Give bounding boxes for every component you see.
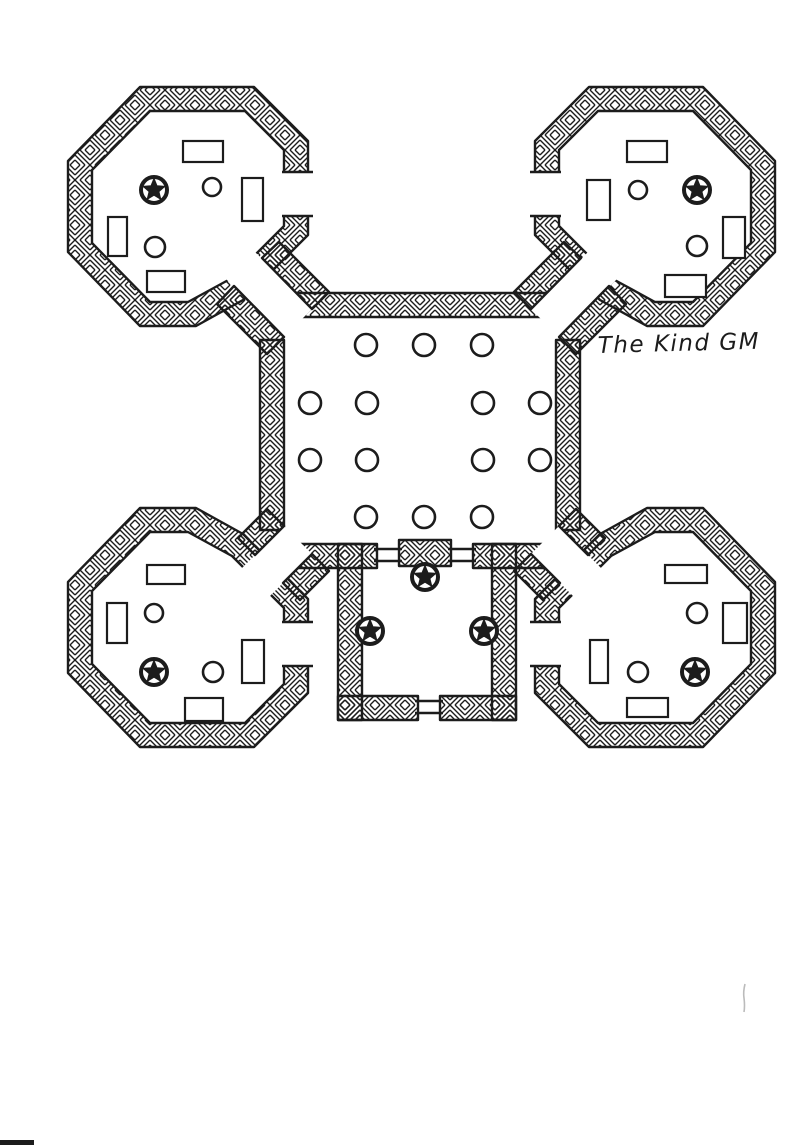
hall-top-wall bbox=[294, 293, 550, 317]
furniture-rect bbox=[587, 180, 610, 220]
furniture-rect bbox=[723, 603, 747, 643]
room-pillar bbox=[203, 662, 223, 682]
furniture-rect bbox=[590, 640, 608, 683]
hall-pillars bbox=[299, 334, 551, 528]
hall-pillar bbox=[529, 449, 551, 471]
star-pillars bbox=[141, 177, 710, 685]
scan-edge-mark bbox=[0, 1140, 34, 1145]
room-pillar bbox=[628, 662, 648, 682]
hall-pillar bbox=[529, 392, 551, 414]
hall-pillar bbox=[472, 392, 494, 414]
artist-signature: The Kind GM bbox=[597, 329, 760, 359]
hall-pillar bbox=[413, 334, 435, 356]
scanned-map-page: The Kind GM bbox=[0, 0, 810, 1145]
hall-pillar bbox=[413, 506, 435, 528]
exit-topleft-floor bbox=[272, 172, 313, 216]
exit-edges bbox=[282, 172, 561, 666]
hall-pillar bbox=[355, 334, 377, 356]
furniture-rect bbox=[242, 640, 264, 683]
squareroom-bottom-wall-right bbox=[440, 696, 516, 720]
furniture-rect bbox=[185, 698, 223, 721]
room-pillar bbox=[145, 237, 165, 257]
hall-left-wall bbox=[260, 340, 284, 530]
hall-pillar bbox=[299, 392, 321, 414]
furniture-rect bbox=[147, 565, 185, 584]
hall-right-wall bbox=[556, 340, 580, 530]
furniture-rect bbox=[108, 217, 127, 256]
furniture-rect bbox=[723, 217, 745, 258]
furniture bbox=[107, 141, 747, 721]
pencil-smudge bbox=[744, 984, 745, 1012]
furniture-rect bbox=[665, 565, 707, 583]
exit-bottomright-floor bbox=[530, 622, 571, 666]
room-pillar bbox=[629, 181, 647, 199]
dungeon-map: The Kind GM bbox=[0, 0, 810, 1145]
furniture-rect bbox=[627, 698, 668, 717]
exit-bottomleft-floor bbox=[272, 622, 313, 666]
furniture-rect bbox=[627, 141, 667, 162]
room-pillars bbox=[145, 178, 707, 682]
hall-pillar bbox=[299, 449, 321, 471]
furniture-rect bbox=[107, 603, 127, 643]
hall-pillar bbox=[356, 449, 378, 471]
exit-topright-floor bbox=[530, 172, 571, 216]
hall-pillar bbox=[471, 506, 493, 528]
furniture-rect bbox=[147, 271, 185, 292]
hall-pillar bbox=[472, 449, 494, 471]
room-pillar bbox=[687, 236, 707, 256]
furniture-rect bbox=[665, 275, 706, 297]
furniture-rect bbox=[183, 141, 223, 162]
paper-artifacts bbox=[0, 984, 745, 1145]
hall-pillar bbox=[471, 334, 493, 356]
walls-layer bbox=[68, 87, 775, 747]
furniture-rect bbox=[242, 178, 263, 221]
room-pillar bbox=[203, 178, 221, 196]
hall-pillar bbox=[355, 506, 377, 528]
room-pillar bbox=[145, 604, 163, 622]
squareroom-bottom-wall-left bbox=[338, 696, 418, 720]
room-pillar bbox=[687, 603, 707, 623]
hall-pillar bbox=[356, 392, 378, 414]
